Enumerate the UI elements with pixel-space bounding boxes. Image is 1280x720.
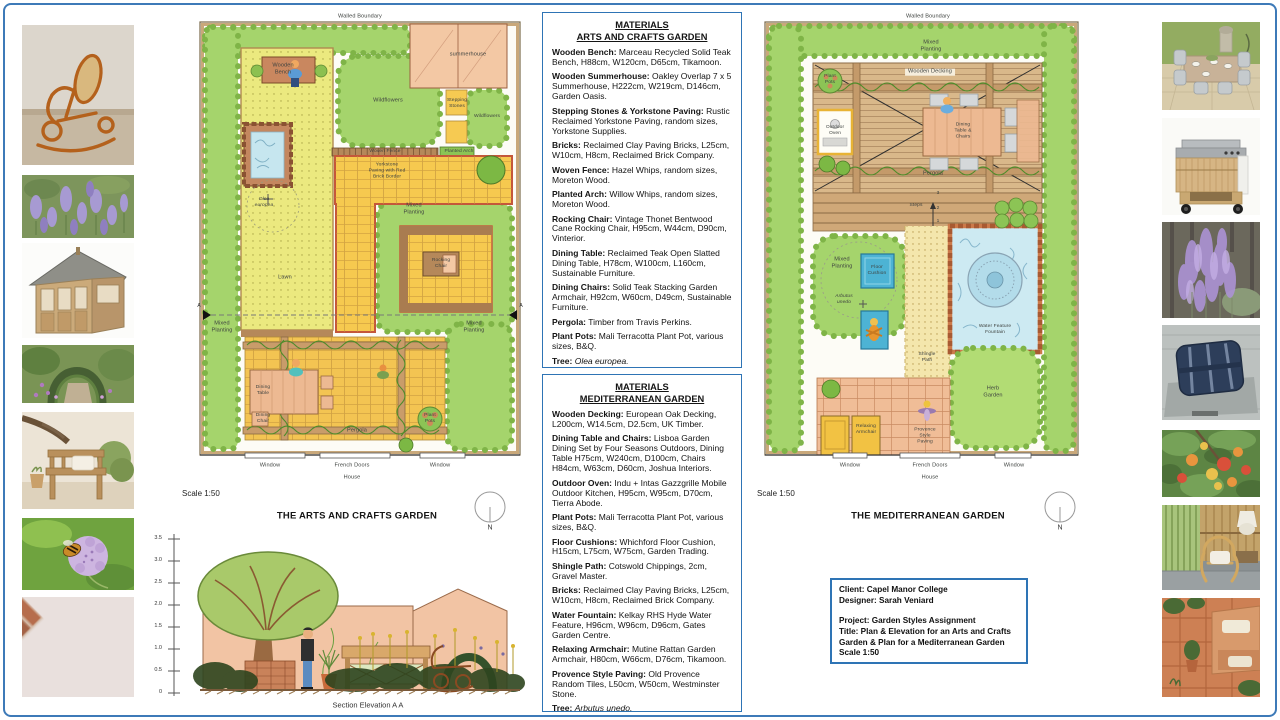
reclaimed-bricks-illustration: [22, 597, 134, 697]
plan1-title: THE ARTS AND CRAFTS GARDEN: [277, 511, 437, 522]
plan2-window-right-label: Window: [1004, 463, 1025, 470]
garden-arch-illustration: [22, 345, 134, 403]
plan2-mixed-planting-left-label: Mixed Planting: [831, 256, 852, 269]
material-item: Dining Chairs: Solid Teak Stacking Garde…: [552, 283, 732, 313]
plan2-steps-label: Steps: [909, 203, 922, 209]
plan1-stepping-stones-label: Stepping Stones: [447, 98, 467, 110]
material-item: Dining Table: Reclaimed Teak Open Slatte…: [552, 249, 732, 279]
section-elevation-drawing: [145, 518, 545, 718]
plan1-summerhouse-label: summerhouse: [450, 52, 487, 59]
plan1-pond: [244, 124, 291, 186]
plan1-pergola-label: Pergola: [347, 428, 367, 435]
summerhouse-illustration: [22, 243, 134, 338]
garden-arch-photo: [22, 345, 134, 403]
terracotta-paving-photo: [1162, 598, 1260, 697]
rocking-chair-photo: [22, 25, 134, 165]
plan1-scale: Scale 1:50: [182, 489, 220, 498]
plan2-wooden-decking-label: Wooden Decking: [905, 69, 955, 76]
plan2-house-label: House: [922, 475, 939, 482]
material-item: Outdoor Oven: Indu + Intas Gazzgrille Mo…: [552, 479, 732, 509]
plan2-hedge-balls: [995, 198, 1038, 228]
floor-cushion-illustration: [1162, 325, 1260, 420]
plan2-provence-label: Provence Style Paving: [914, 427, 935, 444]
elevation-tick-2-0: 2.0: [144, 601, 162, 607]
elevation-ruler: [168, 534, 180, 696]
materials-arts-heading-1: MATERIALS: [552, 20, 732, 32]
floor-cushion-photo: [1162, 325, 1260, 420]
project-name: Project: Garden Styles Assignment: [839, 616, 1019, 627]
plan2-mixed-planting-top-label: Mixed Planting: [920, 39, 941, 52]
outdoor-kitchen-photo: [1162, 118, 1260, 215]
elevation-tick-0: 0: [144, 689, 162, 695]
material-item: Tree: Olea europea.: [552, 357, 732, 367]
plan2-outdoor-oven-label: Outdoor Oven: [826, 125, 844, 137]
materials-mediterranean-box: MATERIALS MEDITERRANEAN GARDEN Wooden De…: [542, 374, 742, 712]
summerhouse-photo: [22, 243, 134, 338]
plan1-wooden-bench-label: Wooden Bench: [272, 62, 293, 75]
client-name: Client: Capel Manor College: [839, 585, 1019, 596]
material-item: Wooden Decking: European Oak Decking, L2…: [552, 410, 732, 430]
plan2-title: THE MEDITERRANEAN GARDEN: [851, 511, 1005, 522]
arbutus-fruit-tree-illustration: [1162, 430, 1260, 497]
plan2-relaxing-armchair-label: Relaxing Armchair: [856, 424, 876, 436]
project-title: Title: Plan & Elevation for an Arts and …: [839, 627, 1019, 648]
material-item: Planted Arch: Willow Whips, random sizes…: [552, 190, 732, 210]
plan2-plant-pots-label: Plant Pots: [824, 74, 836, 86]
plan1-pergola-terrace: [241, 330, 447, 452]
plan1-mixed-planting-nook-label: Mixed Planting: [403, 202, 424, 215]
scabious-flower-illustration: [22, 518, 134, 590]
material-item: Plant Pots: Mali Terracotta Plant Pot, v…: [552, 513, 732, 533]
material-item: Floor Cushions: Whichford Floor Cushion,…: [552, 538, 732, 558]
plan2-french-doors-label: French Doors: [912, 463, 947, 470]
material-item: Plant Pots: Mali Terracotta Plant Pot, v…: [552, 332, 732, 352]
rattan-armchair-photo: [1162, 505, 1260, 590]
elevation-tick-2-5: 2.5: [144, 579, 162, 585]
plan1-yorkstone-label: Yorkstone Paving with Red Brick Border: [369, 162, 406, 179]
plan2-window-left-label: Window: [840, 463, 861, 470]
elevation-tick-0-5: 0.5: [144, 667, 162, 673]
rocking-chair-illustration: [22, 25, 134, 165]
material-item: Shingle Path: Cotswold Chippings, 2cm, G…: [552, 562, 732, 582]
material-item: Wooden Bench: Marceau Recycled Solid Tea…: [552, 48, 732, 68]
plan2-step-1: 1: [937, 219, 940, 225]
plan2-north-arrow: [1045, 492, 1075, 522]
material-item: Rocking Chair: Vintage Thonet Bentwood C…: [552, 215, 732, 245]
terracotta-paving-illustration: [1162, 598, 1260, 697]
elevation-tick-1-0: 1.0: [144, 645, 162, 651]
plan2-shingle-path-label: Shingle Path: [918, 352, 935, 364]
elevation-tick-3-5: 3.5: [144, 535, 162, 541]
plan1-boundary-label: Walled Boundary: [338, 14, 382, 21]
plan1-house-label: House: [344, 475, 361, 482]
outdoor-dining-set-illustration: [1162, 22, 1260, 110]
lavender-photo: [22, 175, 134, 238]
mediterranean-plan-drawing: [755, 8, 1095, 538]
plan2-fountain-label: Water Feature Fountain: [979, 324, 1011, 336]
plan2-scale: Scale 1:50: [757, 489, 795, 498]
plan1-olea-label: Olea europea: [255, 197, 274, 209]
material-item: Pergola: Timber from Travis Perkins.: [552, 318, 732, 328]
plan2-step-3: 3: [937, 191, 940, 197]
elevation-tick-1-5: 1.5: [144, 623, 162, 629]
material-item: Wooden Summerhouse: Oakley Overlap 7 x 5…: [552, 72, 732, 102]
wooden-bench-illustration: [22, 412, 134, 509]
material-item: Stepping Stones & Yorkstone Paving: Rust…: [552, 107, 732, 137]
plan1-wildflowers-right-label: Wildflowers: [474, 114, 500, 120]
material-item: Relaxing Armchair: Mutine Rattan Garden …: [552, 645, 732, 665]
plan2-pergola-label: Pergola: [923, 171, 943, 178]
plan1-section-a-left: A: [197, 303, 200, 309]
plan2-herb-garden-label: Herb Garden: [983, 385, 1002, 398]
plan1-woven-fence-label: Woven Fence: [369, 149, 400, 155]
plan1-french-doors-label: French Doors: [334, 463, 369, 470]
project-scale: Scale 1:50: [839, 648, 1019, 659]
material-item: Water Fountain: Kelkay RHS Hyde Water Fe…: [552, 611, 732, 641]
perovskia-bush-photo: [1162, 222, 1260, 318]
plan1-section-a-right: A: [519, 303, 522, 309]
plan1-mixed-planting-left-label: Mixed Planting: [211, 320, 232, 333]
plan1-mixed-planting-right-label: Mixed Planting: [463, 320, 484, 333]
materials-med-heading-2: MEDITERRANEAN GARDEN: [552, 394, 732, 406]
plan2-arbutus-label: Arbutus unedo: [835, 294, 853, 306]
plan1-rocking-chair-label: Rocking Chair: [432, 258, 450, 270]
reclaimed-bricks-photo: [22, 597, 134, 697]
outdoor-kitchen-illustration: [1162, 118, 1260, 215]
arbutus-fruit-tree-photo: [1162, 430, 1260, 497]
arts-crafts-plan-drawing: [195, 8, 535, 538]
plan1-north-label: N: [487, 525, 492, 532]
material-item: Tree: Arbutus unedo.: [552, 704, 732, 714]
plan1-lawn-label: Lawn: [278, 275, 292, 282]
project-info-box: Client: Capel Manor College Designer: Sa…: [830, 578, 1028, 664]
designer-name: Designer: Sarah Veniard: [839, 596, 1019, 607]
rattan-armchair-illustration: [1162, 505, 1260, 590]
elevation-ground: [200, 690, 520, 694]
plan1-planted-arch-label: Planted Arch: [445, 149, 474, 155]
garden-design-board: Walled Boundary Wooden Bench summerhouse…: [0, 0, 1280, 720]
plan1-window-right-label: Window: [430, 463, 451, 470]
plan2-north-label: N: [1057, 525, 1062, 532]
plan2-dining-set-label: Dining Table & Chairs: [954, 122, 971, 139]
plan1-lawn: [241, 48, 333, 330]
plan2-outdoor-oven: [818, 110, 852, 175]
material-item: Dining Table and Chairs: Lisboa Garden D…: [552, 434, 732, 474]
plan2-step-2: 2: [937, 206, 940, 212]
scabious-flower-photo: [22, 518, 134, 590]
plan2-floor-cushion-label: Floor Cushion: [868, 265, 887, 277]
plan1-dining-chair-label: Dining Chair: [256, 413, 270, 425]
plan1-dining-table-label: Dining Table: [256, 385, 270, 397]
outdoor-dining-set-photo: [1162, 22, 1260, 110]
material-item: Bricks: Reclaimed Clay Paving Bricks, L2…: [552, 586, 732, 606]
materials-arts-crafts-box: MATERIALS ARTS AND CRAFTS GARDEN Wooden …: [542, 12, 742, 368]
material-item: Provence Style Paving: Old Provence Rand…: [552, 670, 732, 700]
material-item: Bricks: Reclaimed Clay Paving Bricks, L2…: [552, 141, 732, 161]
perovskia-bush-illustration: [1162, 222, 1260, 318]
elevation-tick-3-0: 3.0: [144, 557, 162, 563]
material-item: Woven Fence: Hazel Whips, random sizes, …: [552, 166, 732, 186]
plan1-plant-pots-label: Plant Pots: [424, 413, 436, 425]
plan1-wildflowers-center-label: Wildflowers: [373, 98, 403, 105]
materials-arts-heading-2: ARTS AND CRAFTS GARDEN: [552, 32, 732, 44]
elevation-caption: Section Elevation A A: [333, 701, 404, 710]
wooden-bench-photo: [22, 412, 134, 509]
plan1-window-left-label: Window: [260, 463, 281, 470]
lavender-illustration: [22, 175, 134, 238]
materials-med-heading-1: MATERIALS: [552, 382, 732, 394]
plan2-boundary-label: Walled Boundary: [906, 14, 950, 21]
